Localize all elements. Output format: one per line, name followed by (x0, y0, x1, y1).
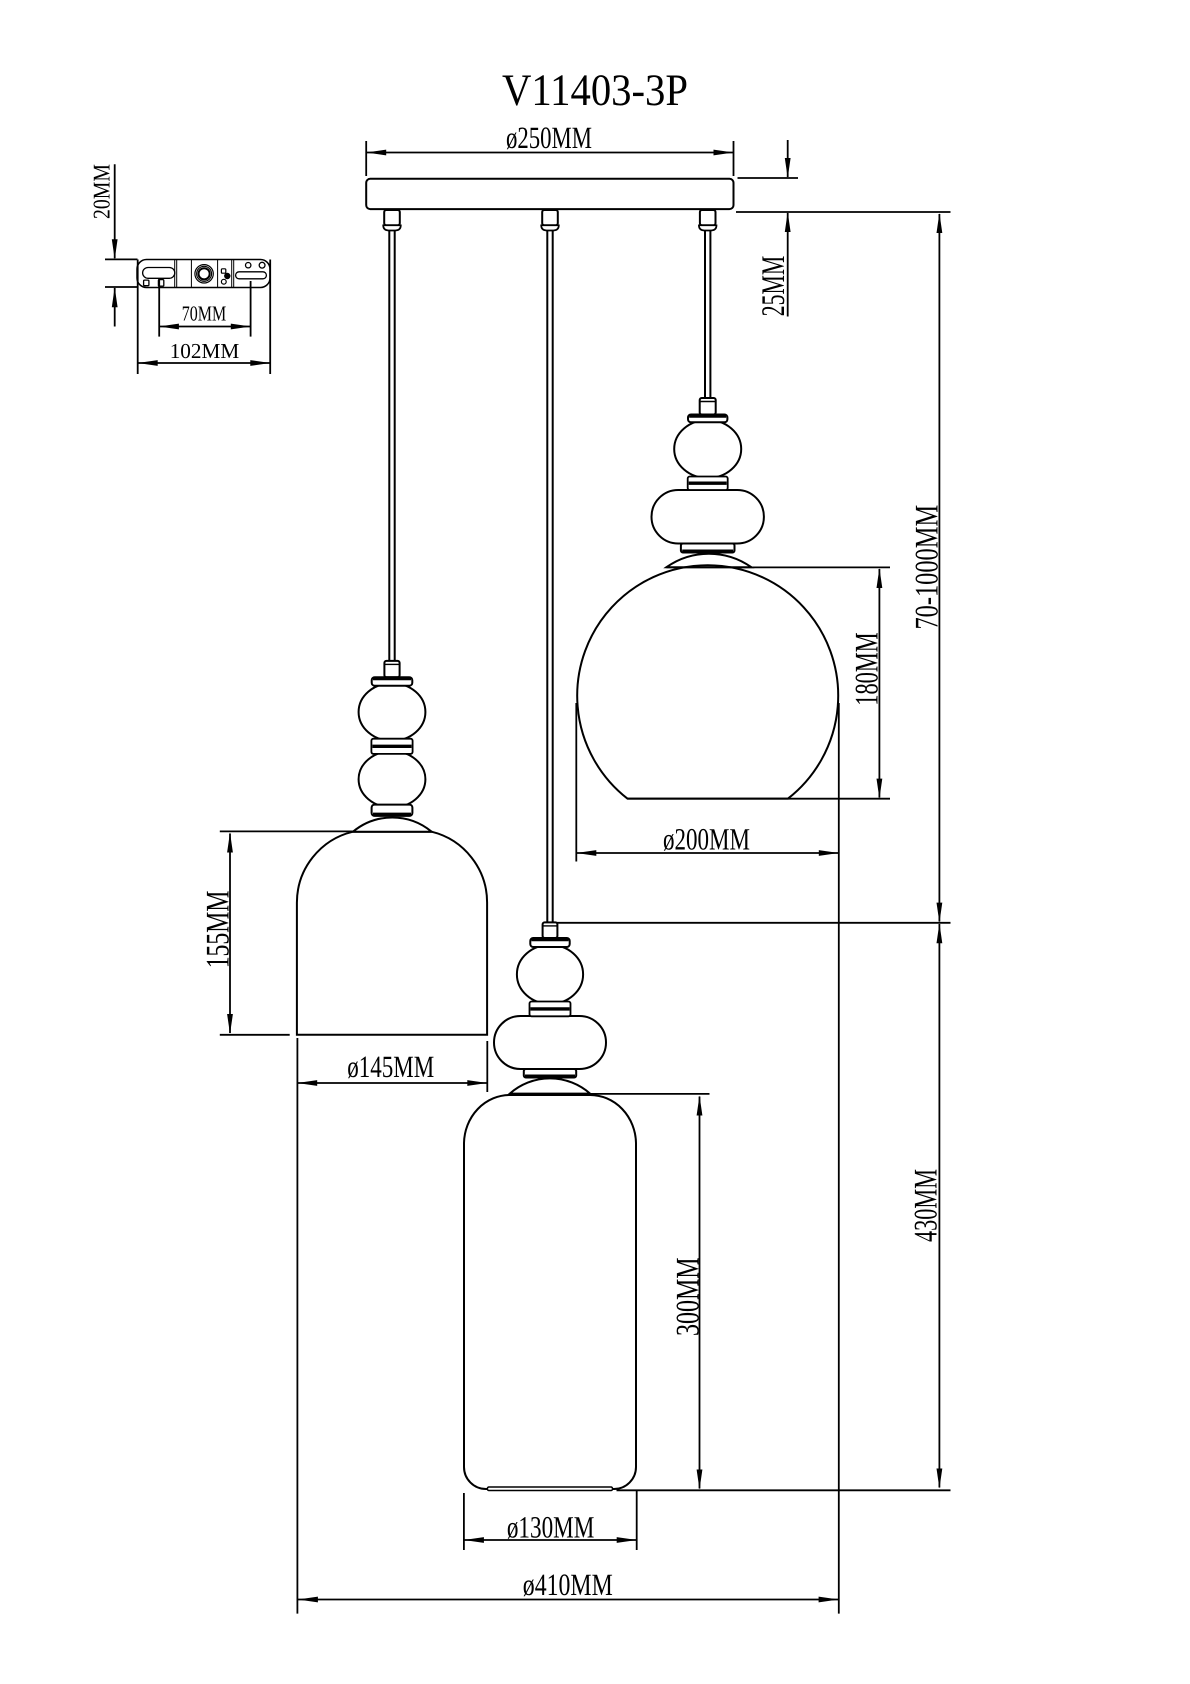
svg-text:ø200MM: ø200MM (663, 822, 750, 857)
svg-text:70MM: 70MM (182, 302, 226, 326)
svg-text:300MM: 300MM (670, 1257, 706, 1336)
svg-text:430MM: 430MM (909, 1169, 945, 1242)
svg-text:102MM: 102MM (170, 339, 240, 363)
svg-text:ø250MM: ø250MM (506, 120, 592, 155)
svg-text:ø130MM: ø130MM (507, 1509, 595, 1544)
svg-text:V11403-3P: V11403-3P (502, 65, 688, 115)
svg-text:155MM: 155MM (201, 891, 237, 969)
svg-text:70-1000MM: 70-1000MM (909, 505, 945, 630)
svg-text:ø410MM: ø410MM (523, 1567, 613, 1602)
svg-text:20MM: 20MM (90, 164, 116, 219)
svg-text:ø145MM: ø145MM (347, 1049, 434, 1084)
svg-text:25MM: 25MM (756, 256, 792, 317)
svg-text:180MM: 180MM (849, 632, 885, 705)
